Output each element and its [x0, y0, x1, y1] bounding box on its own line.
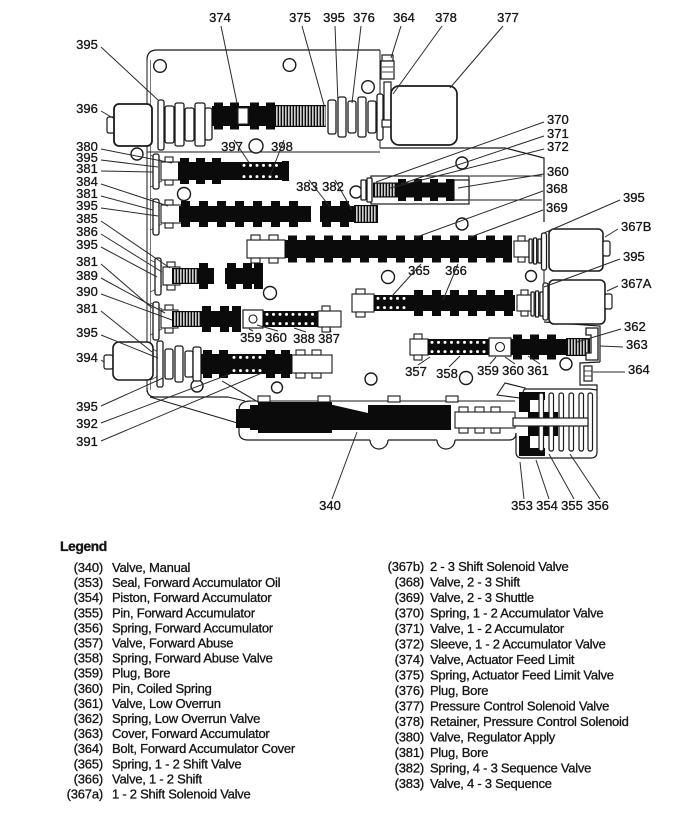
svg-text:367A: 367A: [621, 276, 652, 291]
svg-text:365: 365: [408, 263, 430, 278]
svg-text:357: 357: [405, 364, 427, 379]
svg-text:(374): (374): [395, 652, 424, 667]
svg-text:Piston, Forward Accumulator: Piston, Forward Accumulator: [112, 590, 272, 605]
svg-text:(355): (355): [74, 605, 103, 620]
svg-text:Valve, 2 - 3 Shuttle: Valve, 2 - 3 Shuttle: [430, 590, 534, 605]
svg-text:Valve, Forward Abuse: Valve, Forward Abuse: [112, 636, 233, 651]
svg-text:(376): (376): [395, 683, 424, 698]
svg-text:395: 395: [623, 190, 645, 205]
svg-text:2 - 3 Shift Solenoid Valve: 2 - 3 Shift Solenoid Valve: [430, 559, 569, 574]
svg-text:Spring, Actuator Feed Limit Va: Spring, Actuator Feed Limit Valve: [430, 668, 614, 683]
svg-text:390: 390: [76, 284, 98, 299]
svg-text:340: 340: [319, 498, 341, 513]
svg-text:(367b): (367b): [388, 559, 424, 574]
svg-text:370: 370: [547, 112, 569, 127]
svg-text:Cover, Forward Accumulator: Cover, Forward Accumulator: [112, 726, 270, 741]
svg-text:Plug, Bore: Plug, Bore: [430, 745, 488, 760]
svg-text:(359): (359): [74, 666, 103, 681]
svg-text:388: 388: [293, 331, 315, 346]
svg-text:364: 364: [393, 10, 415, 25]
svg-text:Valve, Manual: Valve, Manual: [112, 560, 191, 575]
svg-text:(380): (380): [395, 730, 424, 745]
svg-text:(383): (383): [395, 776, 424, 791]
svg-text:Valve, 1 - 2 Accumulator: Valve, 1 - 2 Accumulator: [430, 621, 565, 636]
svg-text:(340): (340): [74, 560, 103, 575]
svg-text:395: 395: [76, 399, 98, 414]
svg-text:395: 395: [76, 237, 98, 252]
svg-text:(382): (382): [395, 761, 424, 776]
svg-text:Spring, Forward Abuse Valve: Spring, Forward Abuse Valve: [112, 651, 273, 666]
svg-text:(367a): (367a): [67, 787, 103, 802]
svg-text:360: 360: [502, 363, 524, 378]
svg-text:Pin, Forward Accumulator: Pin, Forward Accumulator: [112, 605, 256, 620]
svg-text:Valve, Actuator Feed Limit: Valve, Actuator Feed Limit: [430, 652, 575, 667]
svg-text:363: 363: [626, 337, 648, 352]
svg-text:Spring, Forward Accumulator: Spring, Forward Accumulator: [112, 620, 274, 635]
svg-text:(354): (354): [74, 590, 103, 605]
svg-text:Valve, 1 - 2 Shift: Valve, 1 - 2 Shift: [112, 771, 203, 786]
svg-text:(375): (375): [395, 668, 424, 683]
svg-text:(370): (370): [395, 606, 424, 621]
svg-text:(366): (366): [74, 771, 103, 786]
svg-text:360: 360: [547, 164, 569, 179]
svg-text:(358): (358): [74, 651, 103, 666]
svg-text:(357): (357): [74, 636, 103, 651]
svg-text:367B: 367B: [621, 219, 651, 234]
svg-text:394: 394: [76, 350, 98, 365]
svg-text:378: 378: [435, 10, 457, 25]
svg-text:362: 362: [624, 319, 646, 334]
svg-text:(365): (365): [74, 756, 103, 771]
svg-text:395: 395: [623, 249, 645, 264]
svg-text:(364): (364): [74, 741, 103, 756]
svg-text:395: 395: [76, 37, 98, 52]
svg-text:368: 368: [546, 181, 568, 196]
svg-text:Valve, Low Overrun: Valve, Low Overrun: [112, 696, 221, 711]
svg-text:Pressure Control Solenoid Valv: Pressure Control Solenoid Valve: [430, 699, 609, 714]
svg-text:376: 376: [353, 10, 375, 25]
svg-text:Seal, Forward Accumulator Oil: Seal, Forward Accumulator Oil: [112, 575, 281, 590]
svg-text:(361): (361): [74, 696, 103, 711]
svg-text:Spring, Low Overrun Valve: Spring, Low Overrun Valve: [112, 711, 260, 726]
svg-text:364: 364: [628, 362, 650, 377]
svg-text:Spring, 4 - 3 Sequence Valve: Spring, 4 - 3 Sequence Valve: [430, 761, 591, 776]
svg-text:353: 353: [511, 498, 533, 513]
svg-text:359: 359: [240, 330, 262, 345]
svg-text:Valve, 4 - 3 Sequence: Valve, 4 - 3 Sequence: [430, 776, 552, 791]
svg-text:354: 354: [536, 498, 558, 513]
svg-text:(368): (368): [395, 575, 424, 590]
svg-text:Sleeve, 1 - 2 Accumulator Valv: Sleeve, 1 - 2 Accumulator Valve: [430, 637, 606, 652]
svg-text:381: 381: [76, 254, 98, 269]
svg-text:381: 381: [76, 301, 98, 316]
svg-text:Plug, Bore: Plug, Bore: [430, 683, 488, 698]
svg-text:Legend: Legend: [60, 538, 107, 554]
svg-text:389: 389: [76, 268, 98, 283]
svg-text:(378): (378): [395, 714, 424, 729]
svg-text:369: 369: [546, 200, 568, 215]
svg-text:1 - 2 Shift Solenoid Valve: 1 - 2 Shift Solenoid Valve: [112, 787, 251, 802]
svg-text:377: 377: [497, 10, 519, 25]
svg-text:(353): (353): [74, 575, 103, 590]
svg-text:(372): (372): [395, 637, 424, 652]
svg-text:(360): (360): [74, 681, 103, 696]
svg-text:392: 392: [76, 416, 98, 431]
svg-text:395: 395: [76, 325, 98, 340]
svg-text:(369): (369): [395, 590, 424, 605]
svg-text:Pin, Coiled Spring: Pin, Coiled Spring: [112, 681, 212, 696]
svg-text:372: 372: [547, 139, 569, 154]
svg-text:(377): (377): [395, 699, 424, 714]
svg-text:Spring, 1 - 2 Shift Valve: Spring, 1 - 2 Shift Valve: [112, 756, 241, 771]
svg-text:395: 395: [323, 10, 345, 25]
svg-text:(371): (371): [395, 621, 424, 636]
svg-text:382: 382: [322, 179, 344, 194]
svg-text:358: 358: [436, 366, 458, 381]
svg-text:Valve, Regulator Apply: Valve, Regulator Apply: [430, 730, 556, 745]
svg-text:356: 356: [587, 498, 609, 513]
svg-text:Bolt, Forward Accumulator Cove: Bolt, Forward Accumulator Cover: [112, 741, 296, 756]
svg-text:359: 359: [477, 363, 499, 378]
svg-text:(363): (363): [74, 726, 103, 741]
svg-text:366: 366: [445, 263, 467, 278]
svg-text:397: 397: [221, 139, 243, 154]
svg-text:Plug, Bore: Plug, Bore: [112, 666, 170, 681]
svg-text:Spring, 1 - 2 Accumulator Valv: Spring, 1 - 2 Accumulator Valve: [430, 606, 603, 621]
svg-text:355: 355: [561, 498, 583, 513]
svg-text:360: 360: [265, 330, 287, 345]
svg-text:375: 375: [289, 10, 311, 25]
svg-text:(356): (356): [74, 620, 103, 635]
svg-text:391: 391: [76, 434, 98, 449]
svg-text:(362): (362): [74, 711, 103, 726]
svg-text:Retainer, Pressure Control Sol: Retainer, Pressure Control Solenoid: [430, 714, 629, 729]
svg-text:374: 374: [209, 10, 231, 25]
svg-text:Valve, 2 - 3 Shift: Valve, 2 - 3 Shift: [430, 575, 521, 590]
svg-text:361: 361: [527, 363, 549, 378]
svg-text:396: 396: [76, 101, 98, 116]
svg-text:387: 387: [318, 331, 340, 346]
svg-text:(381): (381): [395, 745, 424, 760]
